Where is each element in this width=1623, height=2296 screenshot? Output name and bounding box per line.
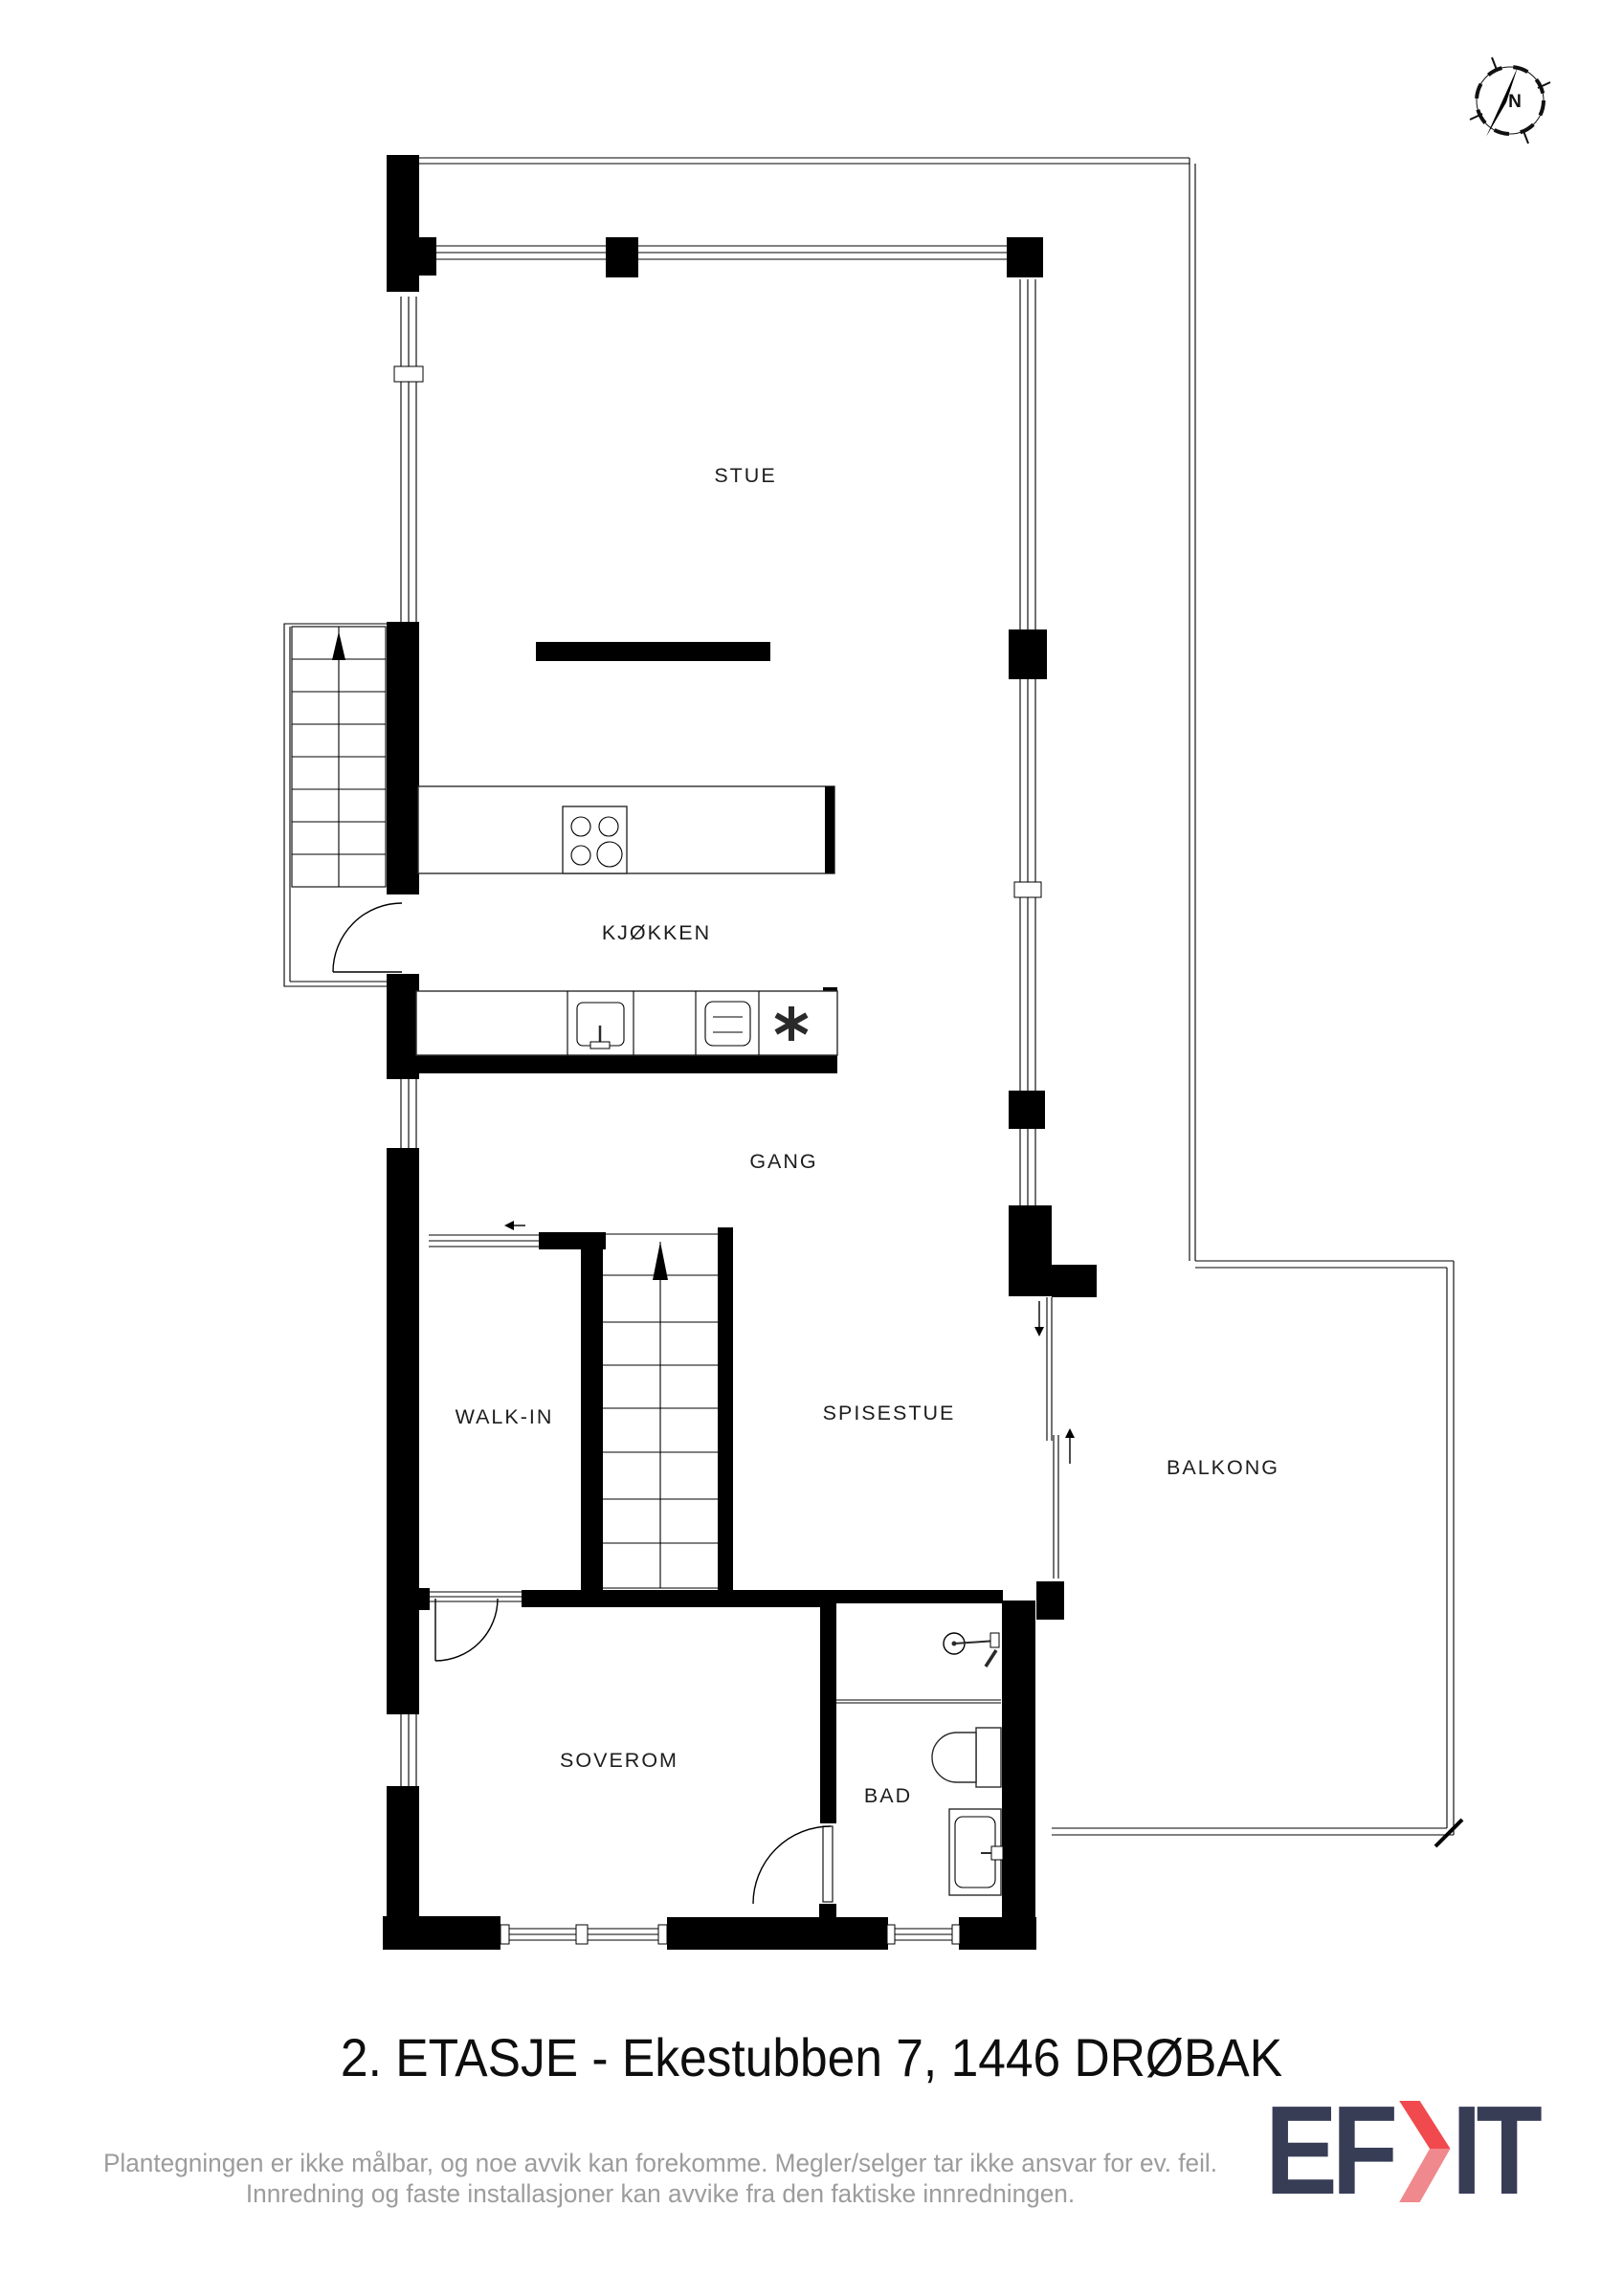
- logo-text-ef: EF: [1265, 2101, 1392, 2200]
- room-label-spisestue: SPISESTUE: [823, 1402, 956, 1424]
- compass-icon: N: [1470, 57, 1550, 143]
- room-label-walkin: WALK-IN: [456, 1405, 554, 1428]
- soverom-door: [435, 1599, 498, 1661]
- cooktop: [563, 806, 627, 873]
- stairs-left: [284, 624, 402, 986]
- entry-door: [333, 903, 402, 972]
- windows: [394, 246, 1041, 1944]
- room-label-stue: STUE: [714, 464, 776, 487]
- roof-outline: [419, 158, 1195, 1261]
- balcony-outline: [1052, 1261, 1462, 1846]
- logo-text-it: IT: [1452, 2101, 1537, 2200]
- room-label-gang: GANG: [749, 1150, 817, 1173]
- bad-door: [753, 1826, 833, 1904]
- disclaimer-line-2: Innredning og faste installasjoner kan a…: [20, 2178, 1301, 2209]
- kitchen-counter: [416, 991, 837, 1055]
- compass-north-label: N: [1508, 92, 1522, 112]
- disclaimer-line-1: Plantegningen er ikke målbar, og noe avv…: [20, 2148, 1301, 2178]
- walkin-slide-arrow: [504, 1221, 525, 1230]
- room-label-balkong: BALKONG: [1167, 1456, 1279, 1479]
- bathroom-fixtures: [834, 1633, 1003, 1895]
- stairs-middle: [603, 1234, 718, 1588]
- balcony-sliding-door: [1034, 1297, 1075, 1578]
- efkt-logo: EF IT: [1265, 2101, 1537, 2202]
- bathroom-sink: [949, 1809, 1003, 1895]
- fireplace-bar: [536, 642, 770, 661]
- room-label-kjokken: KJØKKEN: [602, 921, 711, 944]
- floorplan-page: { "plan": { "rooms": { "stue": "STUE", "…: [0, 0, 1623, 2296]
- logo-chevron-icon: [1397, 2101, 1450, 2202]
- toilet: [932, 1728, 1001, 1787]
- stairs-up-arrow: [332, 631, 345, 660]
- room-label-bad: BAD: [864, 1784, 912, 1807]
- shower: [834, 1633, 1001, 1703]
- room-label-soverom: SOVEROM: [560, 1749, 678, 1772]
- disclaimer-text: Plantegningen er ikke målbar, og noe avv…: [20, 2148, 1301, 2209]
- floor-plan-drawing: N STUE KJØKKEN GANG WALK-IN SPISESTUE BA…: [0, 0, 1623, 2296]
- stairs-up-arrow: [653, 1242, 668, 1280]
